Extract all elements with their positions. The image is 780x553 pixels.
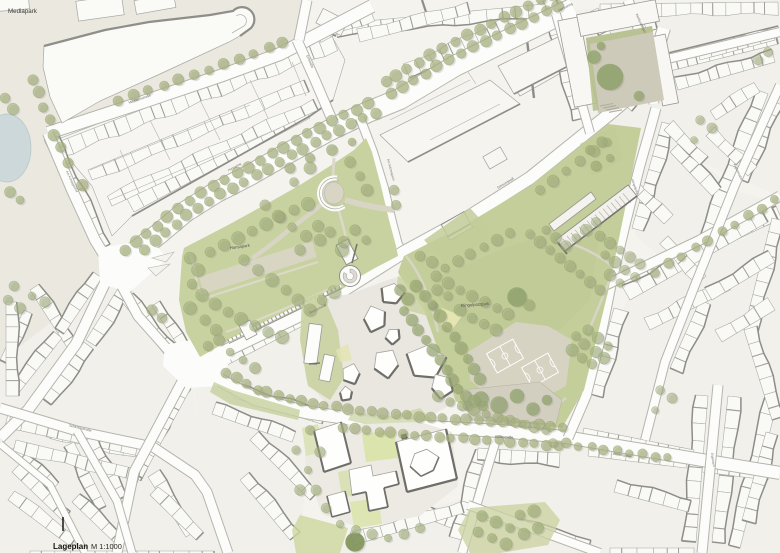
svg-text:Mediapark: Mediapark — [8, 8, 38, 15]
svg-text:M 1:1000: M 1:1000 — [91, 542, 122, 551]
svg-text:Kyotostraße: Kyotostraße — [495, 435, 514, 440]
svg-text:Lageplan: Lageplan — [53, 542, 88, 551]
